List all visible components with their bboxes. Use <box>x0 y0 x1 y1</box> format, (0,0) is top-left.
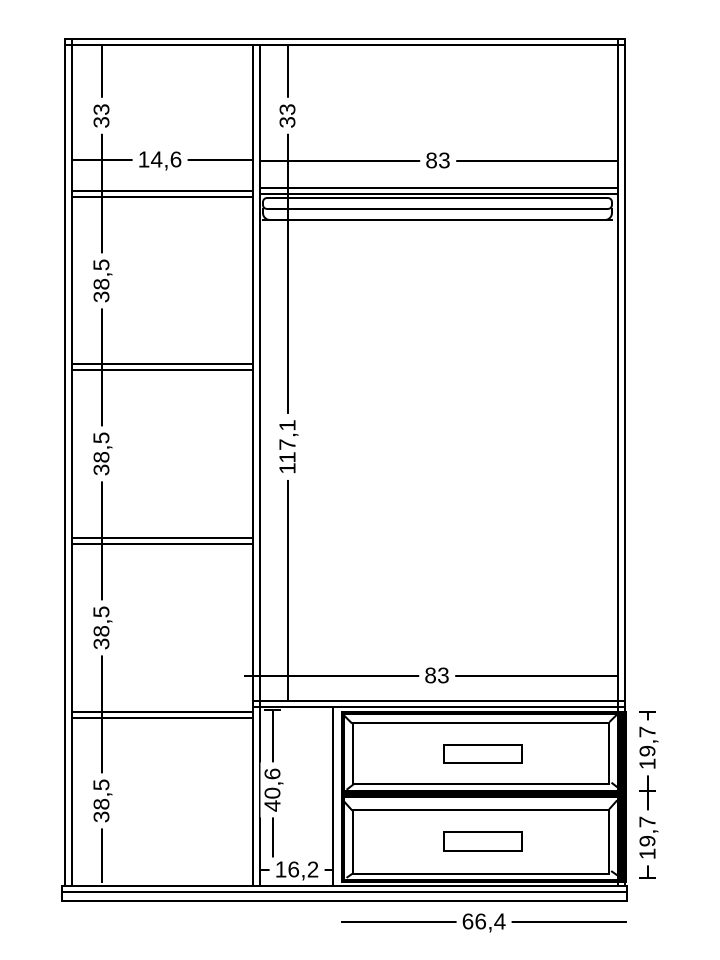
top-panel <box>64 38 626 46</box>
dim-tick-drawers-mid <box>639 790 656 792</box>
dim-label-gap-height: 40,6 <box>261 763 286 818</box>
dim-label-gap-width: 16,2 <box>270 858 325 883</box>
dim-label-left-section-3: 38,5 <box>90 601 115 656</box>
left-side-panel <box>64 38 73 887</box>
left-shelf-3 <box>73 537 253 545</box>
base-plinth-mid-line <box>63 891 626 893</box>
dim-line-right-vertical <box>287 45 289 702</box>
dim-label-drawer-unit-width: 66,4 <box>457 910 512 935</box>
dim-label-left-section-2: 38,5 <box>90 427 115 482</box>
base-plinth <box>61 885 628 902</box>
hanging-rod <box>262 197 613 210</box>
dim-label-right-top-height: 33 <box>276 98 301 134</box>
dim-tick-drawers-bottom <box>639 877 656 879</box>
dim-label-left-section-1: 38,5 <box>90 254 115 309</box>
dim-label-drawer-2-height: 19,7 <box>636 811 661 866</box>
dim-label-drawer-1-height: 19,7 <box>636 721 661 776</box>
dim-label-hanging-space-height: 117,1 <box>276 414 301 480</box>
dim-label-left-column-width: 14,6 <box>133 148 188 173</box>
drawer-2-handle <box>443 831 523 852</box>
dim-label-right-width-bottom: 83 <box>419 664 455 689</box>
left-shelf-1 <box>73 190 253 198</box>
drawer-1-handle <box>443 744 523 764</box>
dim-label-left-section-4: 38,5 <box>90 774 115 829</box>
dim-tick-gap-top <box>264 709 281 711</box>
center-partition-panel <box>252 44 261 887</box>
left-shelf-4 <box>73 711 253 719</box>
drawer-mid-band <box>345 790 619 798</box>
left-shelf-2 <box>73 363 253 371</box>
right-top-shelf <box>261 187 617 195</box>
dim-label-left-top-height: 33 <box>90 98 115 134</box>
dim-label-right-width-top: 83 <box>420 149 456 174</box>
wardrobe-technical-drawing: 33 14,6 38,5 38,5 38,5 38,5 33 83 117,1 … <box>0 0 720 960</box>
dim-tick-drawers-top <box>639 711 656 713</box>
rod-rail-line <box>262 219 613 221</box>
drawer-unit-side-line <box>332 708 334 885</box>
drawer-section-divider <box>252 700 626 708</box>
